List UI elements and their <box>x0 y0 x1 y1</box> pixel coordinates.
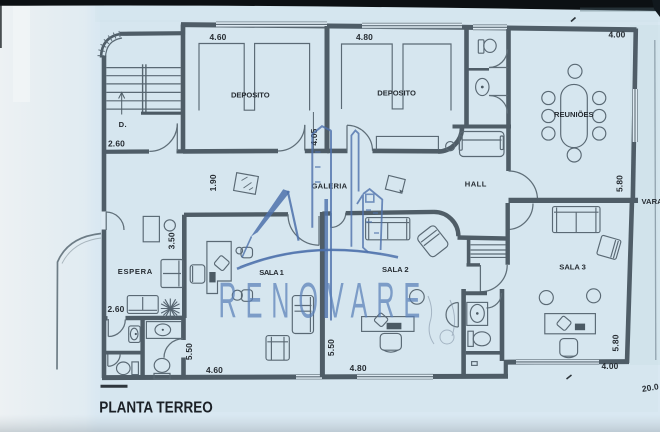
svg-text:RENOVARE: RENOVARE <box>219 273 430 329</box>
svg-text:5.50: 5.50 <box>184 343 194 360</box>
svg-text:2.60: 2.60 <box>108 139 125 149</box>
svg-text:HALL: HALL <box>465 180 487 189</box>
svg-text:PLANTA TERREO: PLANTA TERREO <box>99 400 213 417</box>
svg-text:4.80: 4.80 <box>350 363 367 373</box>
svg-text:4.60: 4.60 <box>209 32 226 42</box>
svg-text:REUNIÕES: REUNIÕES <box>554 110 594 119</box>
svg-text:ESPERA: ESPERA <box>118 267 153 276</box>
svg-text:D.: D. <box>119 120 127 129</box>
svg-text:4.00: 4.00 <box>608 30 625 40</box>
svg-text:5.80: 5.80 <box>615 175 625 192</box>
svg-text:5.50: 5.50 <box>326 339 336 356</box>
svg-text:5.80: 5.80 <box>610 334 620 351</box>
svg-text:1.90: 1.90 <box>208 174 218 191</box>
svg-text:GALERIA: GALERIA <box>312 182 348 191</box>
svg-text:DEPOSITO: DEPOSITO <box>377 89 416 98</box>
svg-text:3.50: 3.50 <box>166 232 176 249</box>
svg-text:4.60: 4.60 <box>206 365 223 375</box>
svg-text:4.00: 4.00 <box>601 361 618 371</box>
svg-text:2.60: 2.60 <box>107 304 124 314</box>
svg-text:DEPOSITO: DEPOSITO <box>231 91 270 100</box>
svg-text:4.80: 4.80 <box>356 32 373 42</box>
svg-text:VARAN: VARAN <box>642 197 660 206</box>
svg-text:SALA 3: SALA 3 <box>559 263 586 272</box>
